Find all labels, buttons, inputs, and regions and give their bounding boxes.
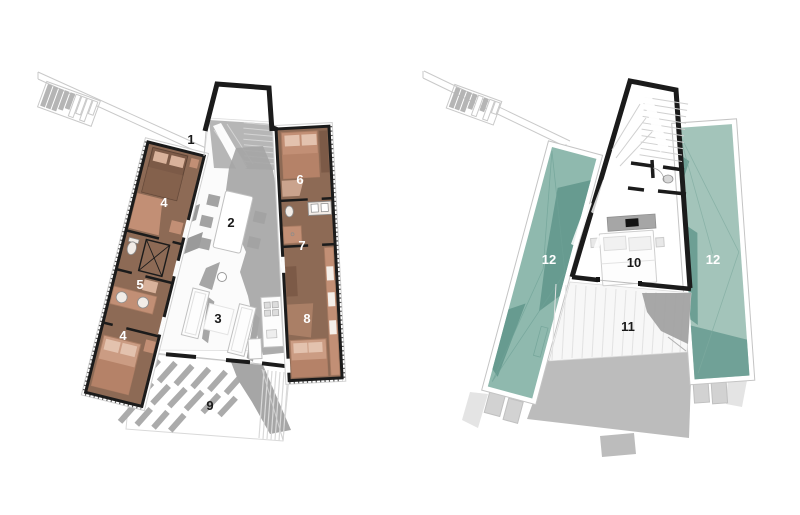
kitchen-island <box>248 338 262 359</box>
upper-bedroom <box>589 214 667 287</box>
roof-terrace <box>549 282 691 361</box>
toilet <box>663 175 673 183</box>
room-label-10: 10 <box>627 255 641 270</box>
room-label-8: 8 <box>303 311 310 326</box>
room-label-4a: 4 <box>160 195 168 210</box>
room-label-5: 5 <box>136 277 143 292</box>
room-label-2: 2 <box>227 215 234 230</box>
room-label-11: 11 <box>621 319 635 334</box>
room-label-6: 6 <box>296 172 303 187</box>
ground-floor-plan: 1 2 3 4 4 5 6 7 8 9 <box>38 72 346 441</box>
floor-plans-svg: 1 2 3 4 4 5 6 7 8 9 <box>0 0 800 515</box>
wood-stove <box>218 273 227 282</box>
toilet <box>285 206 294 217</box>
room-label-12a: 12 <box>542 252 556 267</box>
room-label-9: 9 <box>206 398 213 413</box>
tv <box>625 218 639 227</box>
rug <box>287 303 315 338</box>
right-bedroom-wing <box>272 123 345 385</box>
site-access-stair <box>38 72 206 155</box>
upper-floor-plan: 10 11 12 12 <box>423 71 755 457</box>
room-label-12b: 12 <box>706 252 720 267</box>
room-label-3: 3 <box>214 311 221 326</box>
desk <box>285 266 298 297</box>
room-label-1: 1 <box>187 132 194 147</box>
nightstand <box>656 237 665 247</box>
floor-plans-canvas: 1 2 3 4 4 5 6 7 8 9 <box>0 0 800 515</box>
lower-roof-mass <box>527 349 692 457</box>
room-label-7: 7 <box>298 238 305 253</box>
room-label-4b: 4 <box>119 328 127 343</box>
